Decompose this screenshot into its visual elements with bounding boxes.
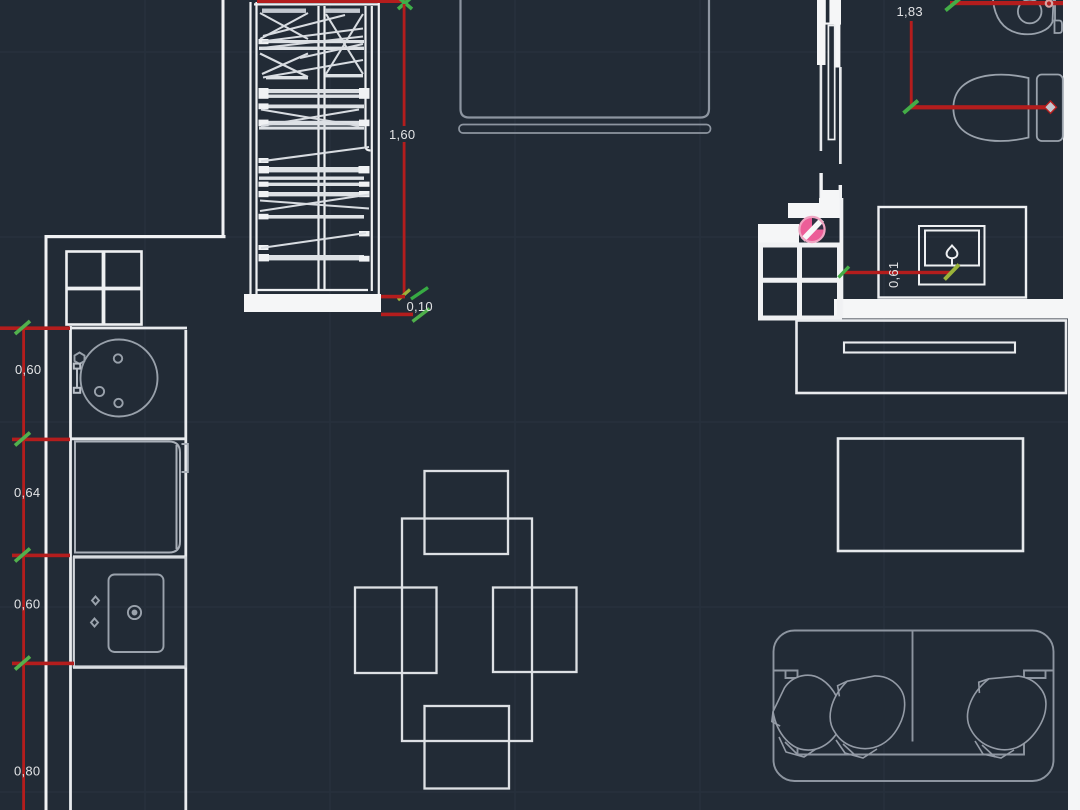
svg-text:1,83: 1,83 (897, 4, 923, 19)
svg-text:0,61: 0,61 (886, 262, 901, 288)
svg-text:0,64: 0,64 (14, 485, 40, 500)
svg-text:1,60: 1,60 (389, 127, 415, 142)
svg-text:0,80: 0,80 (14, 764, 40, 779)
svg-text:0,60: 0,60 (15, 362, 41, 377)
svg-text:0,10: 0,10 (407, 299, 433, 314)
svg-text:0,60: 0,60 (14, 597, 40, 612)
